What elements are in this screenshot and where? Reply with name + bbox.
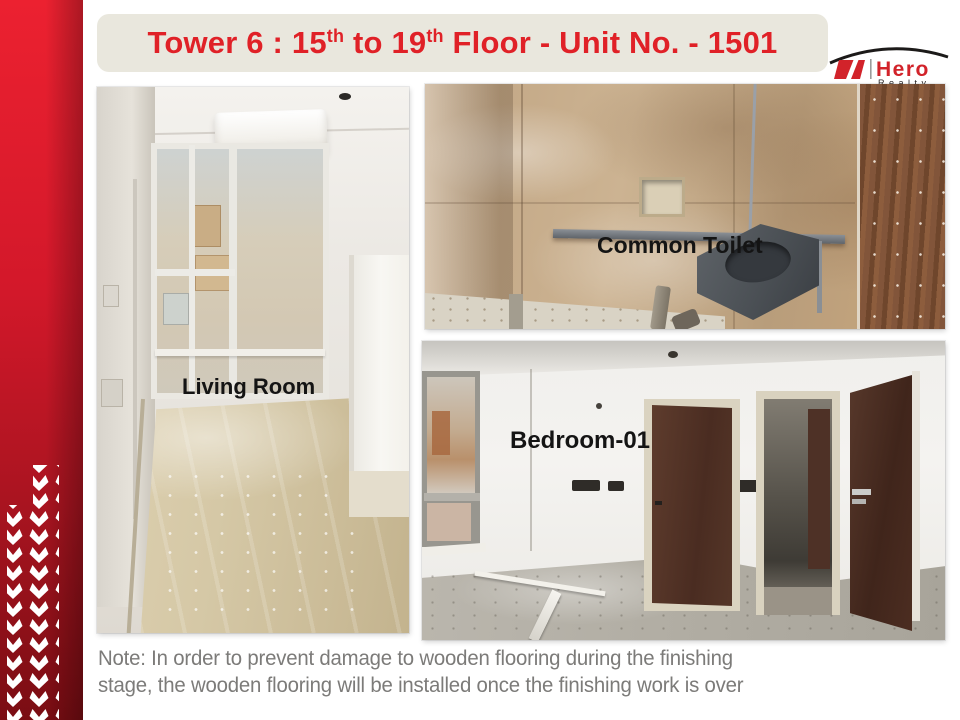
corridor-floor <box>764 587 832 615</box>
paint-speckles <box>863 84 945 329</box>
tile-grout-line <box>521 84 523 329</box>
living-room-label: Living Room <box>182 374 315 400</box>
floor-pipe <box>509 294 523 329</box>
hero-realty-logo-icon: Hero Realty <box>826 36 952 88</box>
switch-panel <box>608 481 624 491</box>
building-view-patch <box>163 293 189 325</box>
window-mullion <box>155 269 235 276</box>
wall-niche <box>639 177 685 217</box>
title-sup2: th <box>426 26 443 46</box>
balcony-rail <box>155 349 325 356</box>
door-jamb <box>912 371 920 621</box>
title-part3: Floor - Unit No. - 1501 <box>444 25 778 60</box>
note-text: Note: In order to prevent damage to wood… <box>98 645 743 699</box>
wheat-ornament-icon <box>0 455 83 720</box>
red-sidebar <box>0 0 83 720</box>
ceiling-junction-box <box>668 351 678 358</box>
building-view-patch <box>432 411 450 455</box>
switch-panel <box>572 480 600 491</box>
window-glass-lower <box>427 503 471 541</box>
title-sup1: th <box>327 26 344 46</box>
left-wall <box>97 87 155 607</box>
inner-door <box>808 409 830 569</box>
left-wall-sheen <box>425 84 513 329</box>
living-room-photo: Living Room <box>97 87 409 633</box>
title-part2: to 19 <box>344 25 426 60</box>
title-banner: Tower 6 : 15th to 19th Floor - Unit No. … <box>97 14 828 72</box>
electrical-box <box>101 379 123 407</box>
logo-divider <box>870 59 872 79</box>
door-lock-plate <box>852 489 871 495</box>
hero-realty-logo: Hero Realty <box>826 36 952 88</box>
common-toilet-label: Common Toilet <box>597 232 763 259</box>
note-line-1: Note: In order to prevent damage to wood… <box>98 645 743 672</box>
floor-speckles <box>157 467 357 627</box>
page-title: Tower 6 : 15th to 19th Floor - Unit No. … <box>147 25 777 61</box>
switch-plate <box>103 285 119 307</box>
door-lock-plate <box>852 499 866 504</box>
side-room-floor <box>349 471 409 517</box>
bedroom-label: Bedroom-01 <box>510 427 650 455</box>
ceiling-junction-box <box>339 93 351 100</box>
note-line-2: stage, the wooden flooring will be insta… <box>98 672 743 699</box>
window-rail <box>424 493 480 501</box>
common-toilet-photo: Common Toilet <box>425 84 945 329</box>
slide: Tower 6 : 15th to 19th Floor - Unit No. … <box>0 0 960 720</box>
title-part1: Tower 6 : 15 <box>147 25 326 60</box>
wall-dot <box>596 403 602 409</box>
door-handle <box>655 501 662 505</box>
wall-corner-line <box>530 369 532 551</box>
closed-door <box>652 405 732 606</box>
bedroom-photo: Bedroom-01 <box>422 341 945 640</box>
